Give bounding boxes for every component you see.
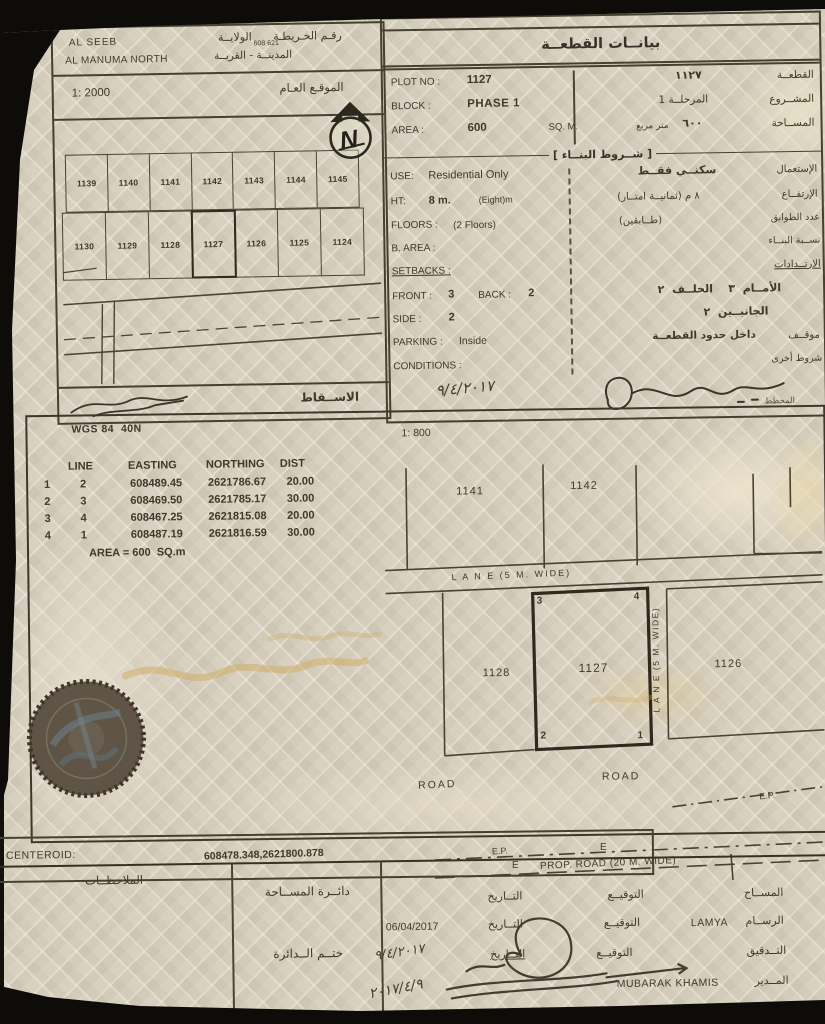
corner-4: 4 — [634, 591, 640, 602]
draftsman-date: 06/04/2017 — [386, 922, 439, 934]
site-plan-lines — [27, 407, 825, 841]
road-label-2: ROAD — [602, 771, 640, 783]
use-label: USE: — [390, 171, 414, 182]
region-name-en: AL SEEB — [69, 37, 118, 49]
scanned-krooki-document: AL SEEB AL MANUMA NORTH رقـم الخـريطـة 6… — [0, 0, 825, 1024]
plan-plot-1127: 1127 — [579, 662, 609, 676]
site-plan-panel: WGS 84 40N 1: 800 LINE EASTING NORTHING … — [25, 405, 825, 843]
use-label-ar: الإستعمال — [776, 164, 817, 176]
plot-data-titlebar: بيانــات القطعــة — [382, 23, 820, 71]
setbacks-label-ar: الإرتــدادات — [774, 259, 821, 271]
corner-3: 3 — [537, 596, 543, 607]
parking-value-ar: داخل حدود القطعــة — [652, 330, 756, 343]
parking-value: Inside — [459, 336, 487, 348]
project-label-ar: المشــروع — [769, 94, 814, 106]
parking-label-ar: موقــف — [788, 330, 820, 341]
overview-panel: AL SEEB AL MANUMA NORTH رقـم الخـريطـة 6… — [51, 21, 392, 425]
overview-plot-cell: 1140 — [108, 154, 151, 211]
use-value-ar: سكنــي فقــط — [638, 164, 717, 177]
area-value: 600 — [467, 122, 486, 135]
block-label: BLOCK : — [391, 101, 431, 113]
survey-dept-label-ar: دائــرة المســاحة — [241, 885, 373, 900]
height-label-ar: الإرتفــاع — [782, 189, 818, 201]
plan-plot-1141: 1141 — [456, 485, 484, 497]
city-village-label-ar: المدينــة - القريــة — [214, 50, 292, 63]
block-value: PHASE 1 — [467, 97, 520, 110]
plan-plot-1128: 1128 — [483, 667, 511, 679]
header-rule-right — [656, 150, 821, 154]
map-number-label-ar: رقـم الخـريطـة — [273, 30, 342, 43]
plot-label-ar: القطعــة — [777, 70, 814, 82]
area-unit-ar: متر مربع — [636, 122, 669, 132]
conditions-label: CONDITIONS : — [393, 360, 462, 372]
floors-label-ar: عدد الطوابق — [771, 213, 821, 224]
centeroid-label: CENTEROID: — [6, 850, 76, 862]
notes-label-ar: الملاحظــات — [85, 874, 143, 887]
b-area-label: B. AREA : — [391, 243, 435, 255]
front-value: 3 — [448, 288, 454, 300]
road-label-1: ROAD — [418, 779, 457, 792]
area-value-ar: ٦٠٠ — [682, 117, 702, 129]
plot-no-label: PLOT NO : — [391, 77, 440, 89]
overview-plot-cell-highlighted: 1127 — [192, 211, 236, 278]
handwritten-director-date: ٢٠١٧/٤/٩ — [368, 977, 424, 1002]
surveyor-label-ar: المســاح — [744, 887, 784, 900]
lane-vertical-label: L A N E (5 M. WIDE) — [651, 590, 662, 730]
height-label: HT: — [391, 196, 406, 207]
side-ar: الجانبــين ٢ — [704, 305, 769, 318]
use-value: Residential Only — [428, 168, 508, 181]
overview-plot-cell: 1142 — [191, 153, 234, 210]
block-value-ar: المرحلــة 1 — [658, 94, 708, 106]
footer-divider-1 — [231, 864, 235, 1014]
plan-plot-1142: 1142 — [570, 480, 598, 492]
handwritten-approval-date: ٩/٤/٢٠١٧ — [435, 378, 495, 399]
header-rule-left — [384, 154, 549, 158]
building-conditions-title: [ شــروط البنــاء ] — [553, 147, 652, 162]
plot-no-value-ar: ١١٢٧ — [675, 69, 702, 82]
director-label-ar: المــدير — [754, 975, 788, 988]
height-value-ar: ٨ م (ثمانيــة امتــار) — [617, 190, 700, 202]
floors-value-ar: (طــابقين) — [619, 215, 662, 227]
setbacks-label: SETBACKS : — [392, 265, 451, 277]
back-value: 2 — [528, 287, 534, 299]
gold-watermark-scribble — [125, 630, 651, 708]
conditions-dashed-divider — [568, 169, 573, 375]
parking-label: PARKING : — [393, 337, 443, 349]
draftsman-name: LAMYA — [691, 918, 728, 930]
overview-scale: 1: 2000 — [72, 87, 111, 100]
overview-plot-cell: 1143 — [233, 152, 276, 209]
overview-header-row: AL SEEB AL MANUMA NORTH رقـم الخـريطـة 6… — [53, 23, 384, 77]
dept-stamp-label-ar: ختــم الــدائرة — [242, 947, 374, 962]
city-name-en: AL MANUMA NORTH — [65, 54, 168, 67]
plot-data-divider — [573, 70, 576, 144]
plot-data-panel: بيانــات القطعــة PLOT NO : 1127 ١١٢٧ ال… — [380, 11, 825, 424]
front-back-ar: الأمــام ٣ الخلــف ٢ — [658, 282, 782, 296]
north-arrow-icon: N — [318, 99, 383, 164]
corner-2: 2 — [540, 730, 546, 741]
clipped-top-title-fragments — [0, 0, 825, 24]
overview-plot-cell: 1141 — [150, 154, 193, 211]
back-label: BACK : — [478, 289, 511, 301]
corner-1: 1 — [637, 730, 643, 741]
plot-data-title: بيانــات القطعــة — [541, 35, 660, 53]
b-area-label-ar: نســبة البنــاء — [768, 236, 820, 247]
ep-label-1: E.P. — [759, 791, 776, 803]
wilaya-label-ar: الولايــة — [218, 31, 252, 44]
floors-value: (2 Floors) — [453, 220, 496, 232]
overview-plot-cell: 1139 — [66, 155, 109, 212]
overview-plot-cell: 1144 — [275, 151, 318, 208]
projection-label-ar: الاســقاط — [300, 391, 359, 405]
side-value: 2 — [448, 311, 454, 323]
front-label: FRONT : — [392, 291, 432, 303]
height-value: 8 m. — [429, 194, 451, 206]
footer-table: الملاحظــات دائــرة المســاحة ختــم الــ… — [0, 854, 825, 1020]
floors-label: FLOORS : — [391, 220, 438, 232]
map-number-value: 608 621 — [254, 40, 279, 48]
draftsman-label-ar: الرســام — [745, 915, 783, 928]
general-site-label-ar: الموقـع العـام — [279, 81, 343, 95]
side-label: SIDE : — [393, 314, 422, 325]
director-signature-scribble — [436, 898, 697, 1007]
plot-no-value: 1127 — [467, 74, 492, 87]
overview-plot-row-1: 1139 1140 1141 1142 1143 1144 1145 — [65, 150, 360, 213]
checked-label-ar: التــدقيق — [746, 945, 786, 958]
official-stamp — [29, 681, 144, 796]
area-label-ar: المســاحة — [771, 118, 814, 130]
building-conditions-header: [ شــروط البنــاء ] — [384, 143, 821, 166]
plan-plot-1126: 1126 — [714, 658, 742, 670]
area-label: AREA : — [392, 125, 424, 137]
height-note: (Eight)m — [479, 195, 513, 205]
